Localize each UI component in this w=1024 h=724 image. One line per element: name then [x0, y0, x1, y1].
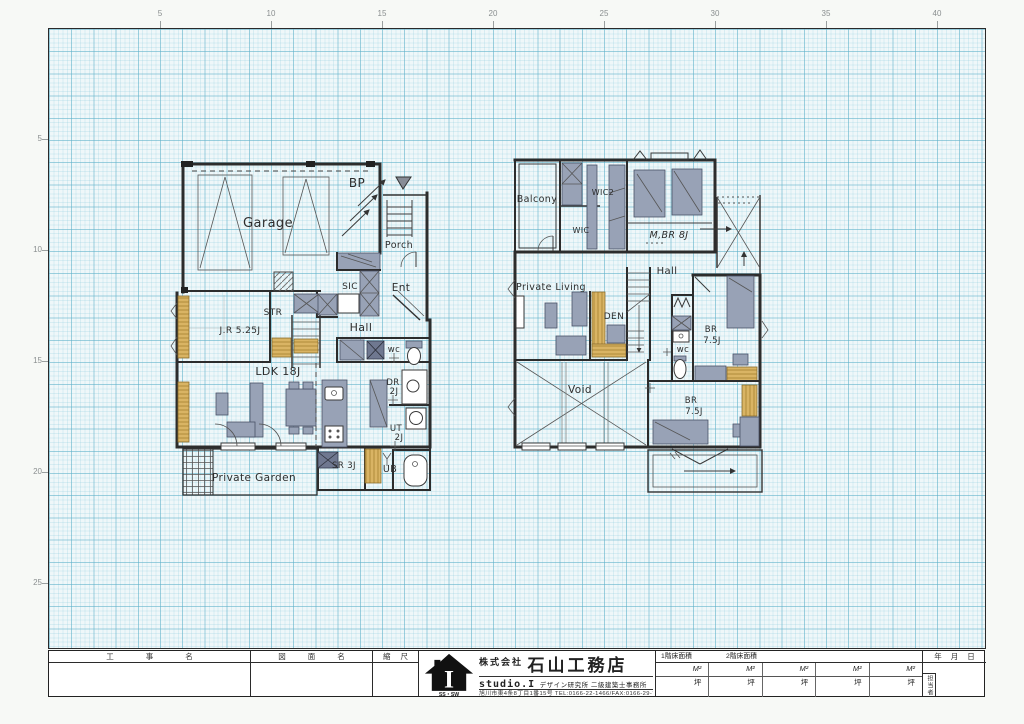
- date-label: 年月日: [923, 651, 986, 663]
- company-address: 旭川市東4条8丁目1番15号 TEL:0166-22-1466/FAX:0166…: [479, 690, 653, 698]
- room-label-garage: Garage: [243, 216, 293, 231]
- floor-plan-1f: Garage BP Porch Ent SIC STR J.R 5.25J Ha…: [171, 161, 430, 495]
- company-name: 石山工務店: [527, 656, 627, 675]
- toilet-icon: [406, 341, 422, 365]
- studio-name: studio.I: [479, 679, 535, 690]
- tsubo-unit: 坪: [815, 677, 868, 697]
- scale-cell: 縮尺: [373, 651, 419, 696]
- m2-unit: M²: [869, 663, 922, 676]
- date-cell: 年月日 担当者: [923, 651, 986, 696]
- bathtub-icon: [404, 455, 427, 486]
- room-label-jr: J.R 5.25J: [219, 326, 261, 336]
- floor-plan-2f: Balcony WIC2 WIC M,BR 8J Hall Private Li…: [508, 150, 768, 492]
- company-cell: I SS・SW 株式会社 石山工務店 studio.I デザイン研究所 二級建築…: [419, 651, 656, 696]
- m2-unit: M²: [708, 663, 761, 676]
- tsubo-row: 坪 坪 坪 坪 坪: [656, 677, 922, 697]
- m2-unit: M²: [762, 663, 815, 676]
- tsubo-unit: 坪: [869, 677, 922, 697]
- floor-area-cell: 1階床面積 2階床面積 M² M² M² M² M² 坪 坪 坪 坪 坪: [656, 651, 923, 696]
- drawing-name-label: 図面名: [251, 651, 372, 663]
- studio-description: デザイン研究所 二級建築士事務所: [540, 682, 647, 689]
- room-label-wc-1f: wc: [388, 345, 400, 355]
- toilet-icon-2f: [674, 356, 686, 379]
- company-prefix: 株式会社: [479, 657, 523, 667]
- room-label-br2-size: 7.5J: [685, 407, 703, 417]
- floor2-area-label: 2階床面積: [726, 651, 757, 662]
- floor-plan-drawing: Garage BP Porch Ent SIC STR J.R 5.25J Ha…: [0, 0, 1024, 724]
- drawing-name-cell: 図面名: [251, 651, 373, 696]
- room-label-porch: Porch: [385, 240, 413, 251]
- scanned-floorplan-sheet: { "rulers": { "top": ["5","10","15","20"…: [0, 0, 1024, 724]
- room-label-ent: Ent: [392, 282, 411, 294]
- room-label-private-garden: Private Garden: [212, 472, 296, 484]
- slope-triangle-icon: [396, 177, 411, 189]
- staff-label: 担当者: [923, 673, 936, 696]
- room-label-ldk: LDK 18J: [255, 365, 300, 378]
- company-name-row: 株式会社 石山工務店: [479, 651, 653, 677]
- room-label-den: DEN: [604, 312, 625, 322]
- room-label-dr-size: 2J: [390, 387, 399, 397]
- room-label-sic: SIC: [342, 282, 358, 292]
- room-label-str: STR: [264, 308, 283, 318]
- m2-row: M² M² M² M² M²: [656, 663, 922, 677]
- project-name-label: 工事名: [49, 651, 250, 663]
- room-label-hall-2f: Hall: [657, 266, 678, 277]
- room-label-wic: WIC: [572, 226, 589, 235]
- room-label-hall-1f: Hall: [350, 321, 373, 334]
- tsubo-unit: 坪: [708, 677, 761, 697]
- m2-unit: M²: [815, 663, 868, 676]
- room-label-balcony: Balcony: [517, 194, 557, 205]
- room-label-br1: BR: [705, 325, 718, 335]
- room-label-br2: BR: [685, 396, 698, 406]
- title-block: 工事名 図面名 縮尺 I SS・SW 株式会社 石山工務店 studio.I デ…: [48, 650, 985, 697]
- logo-letter: I: [444, 664, 454, 693]
- room-label-bp: BP: [349, 176, 365, 190]
- room-label-mbr: M,BR 8J: [649, 230, 688, 241]
- tsubo-unit: 坪: [656, 677, 708, 697]
- scale-label: 縮尺: [373, 651, 418, 663]
- room-label-ub: UB: [383, 464, 397, 475]
- project-name-cell: 工事名: [49, 651, 251, 696]
- m2-unit: M²: [656, 663, 708, 676]
- tsubo-unit: 坪: [762, 677, 815, 697]
- room-label-void: Void: [568, 384, 592, 396]
- floor1-area-label: 1階床面積: [661, 651, 692, 662]
- logo-subtext: SS・SW: [439, 692, 459, 696]
- company-logo: I SS・SW: [423, 653, 475, 696]
- room-label-private-living: Private Living: [516, 282, 586, 293]
- room-label-sr: SR 3J: [332, 461, 356, 471]
- room-label-wic2: WIC2: [592, 188, 615, 197]
- room-label-br1-size: 7.5J: [703, 336, 721, 346]
- studio-row: studio.I デザイン研究所 二級建築士事務所: [479, 677, 653, 690]
- room-label-wc-2f: wc: [677, 345, 689, 355]
- ldk-furniture: [216, 380, 387, 447]
- room-label-ut-size: 2J: [395, 433, 404, 443]
